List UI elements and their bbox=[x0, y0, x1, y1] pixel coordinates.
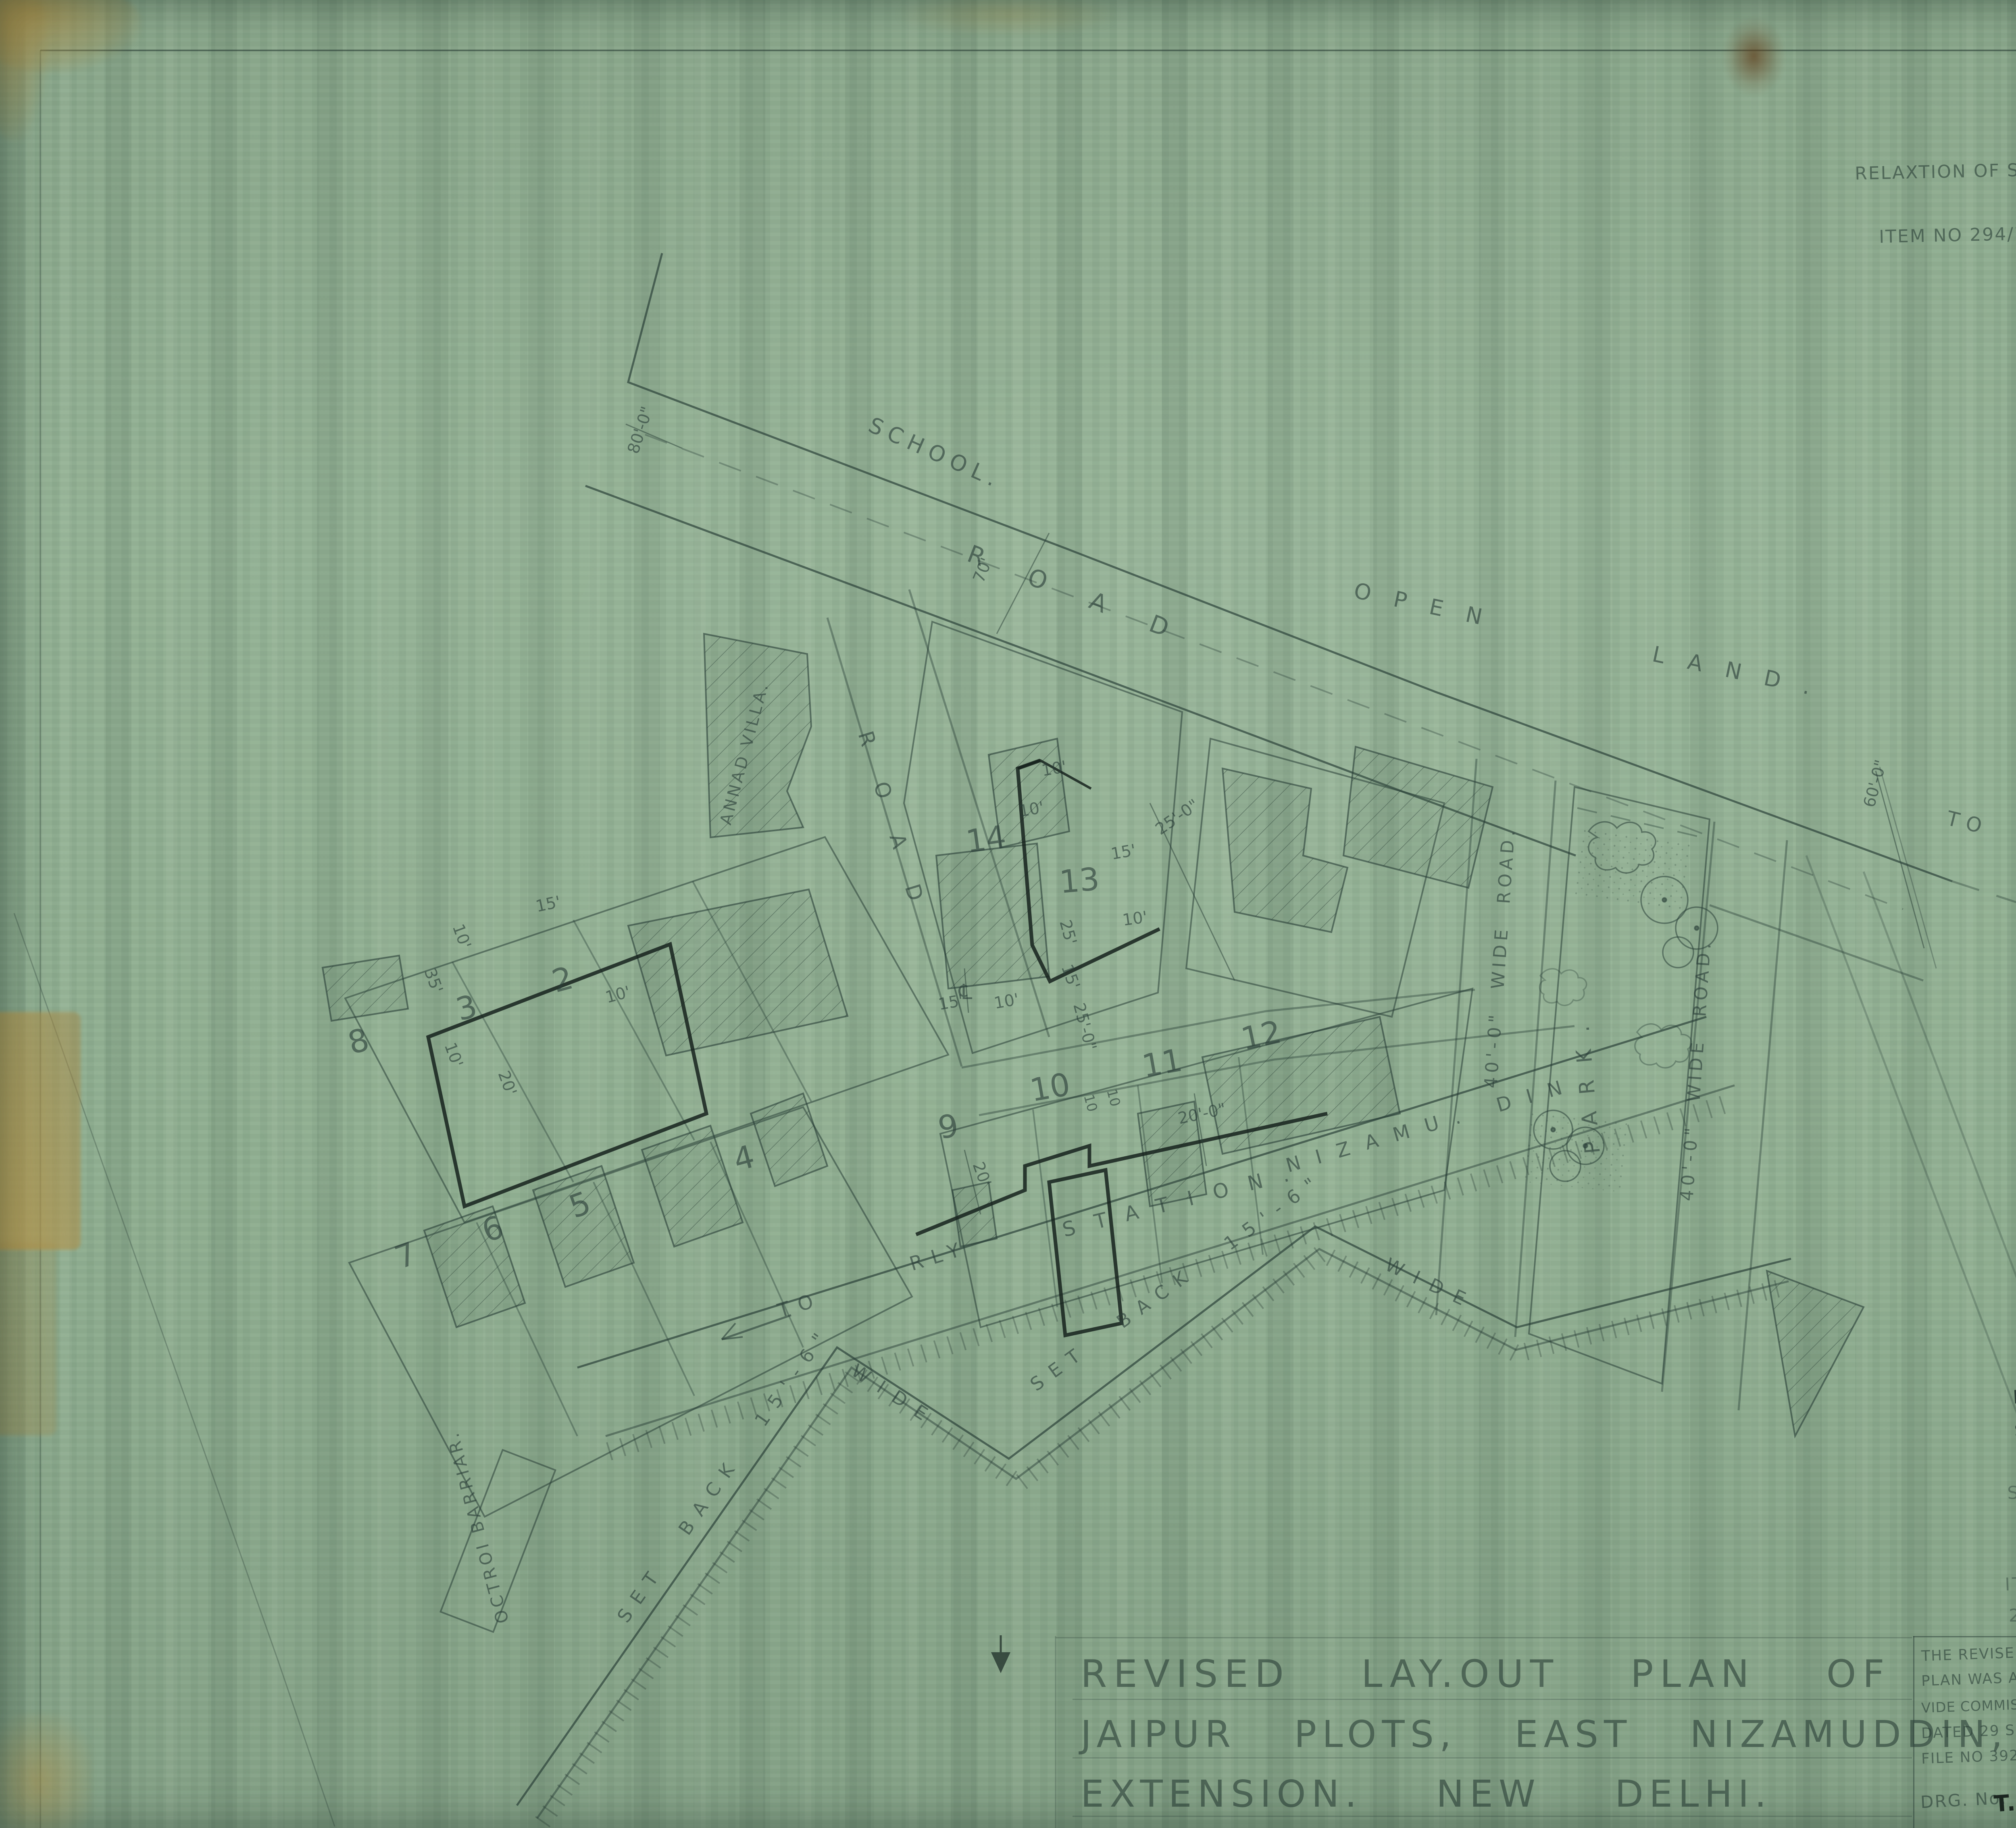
drawing-sheet: SCHOOL. ROAD ROAD OPEN LAND. TO MATHURA … bbox=[0, 0, 2016, 1828]
fold-line bbox=[14, 913, 335, 1826]
wide-road-right-label: 40'-0" WIDE ROAD. bbox=[1677, 939, 1715, 1202]
dim-80: 80'-0" bbox=[624, 404, 657, 456]
north-arrow-icon bbox=[991, 1635, 1010, 1673]
rly-label: RLY bbox=[907, 1236, 971, 1275]
dim-25-0: 25'-0" bbox=[1152, 796, 1202, 839]
plot-number-8: 8 bbox=[344, 1022, 373, 1062]
plot-number-14: 14 bbox=[964, 819, 1008, 860]
wide-label-1: WIDE bbox=[848, 1360, 942, 1431]
to-mathura-label: TO MATHURA ROAD. bbox=[1944, 806, 2016, 918]
dim-10: 10' bbox=[1121, 908, 1149, 930]
plot-number-7: 7 bbox=[390, 1235, 421, 1276]
dim-25: 25' bbox=[1056, 918, 1080, 947]
dim-10: 10' bbox=[604, 983, 633, 1007]
school-label: SCHOOL. bbox=[865, 412, 1007, 494]
octroi-label: OCTROI BARRIAR. bbox=[442, 1428, 512, 1626]
plot-number-11: 11 bbox=[1139, 1042, 1185, 1085]
plot-number-2: 2 bbox=[548, 960, 577, 1000]
plot-number-4: 4 bbox=[730, 1139, 758, 1179]
to-label: TO bbox=[775, 1287, 825, 1322]
plot-number-10: 10 bbox=[1027, 1066, 1073, 1109]
layout-plan-drawing: SCHOOL. ROAD ROAD OPEN LAND. TO MATHURA … bbox=[0, 0, 2016, 1828]
plot-number-9: 9 bbox=[935, 1107, 962, 1146]
open-land-label: OPEN LAND. bbox=[1352, 578, 1836, 704]
dim-15: 15' bbox=[1110, 841, 1137, 864]
plot-number-3: 3 bbox=[452, 988, 481, 1029]
title-guides bbox=[1056, 1636, 1912, 1828]
dim-35: 35' bbox=[421, 966, 446, 996]
wide-road-left-label: 40'-0" WIDE ROAD. bbox=[1481, 826, 1519, 1089]
dim-60: 60'-0" bbox=[1860, 758, 1891, 810]
dim-25-0: 25'-0" bbox=[1069, 1001, 1100, 1053]
park-ground-texture bbox=[1575, 827, 1692, 910]
dim-20: 20' bbox=[494, 1068, 520, 1098]
dim-10: 10' bbox=[993, 990, 1020, 1013]
park-ground-texture bbox=[1521, 1110, 1629, 1192]
setback-label-1: SET BACK 15'-6" bbox=[613, 1321, 836, 1627]
dim-15: 15' bbox=[534, 893, 562, 916]
dim-10: 10 bbox=[1103, 1087, 1123, 1108]
dim-10: 10' bbox=[441, 1040, 467, 1070]
dim-10: 10' bbox=[1040, 758, 1068, 780]
plot-number-13: 13 bbox=[1058, 861, 1101, 901]
dim-10: 10 bbox=[1080, 1093, 1100, 1114]
dim-10: 10' bbox=[449, 922, 475, 951]
